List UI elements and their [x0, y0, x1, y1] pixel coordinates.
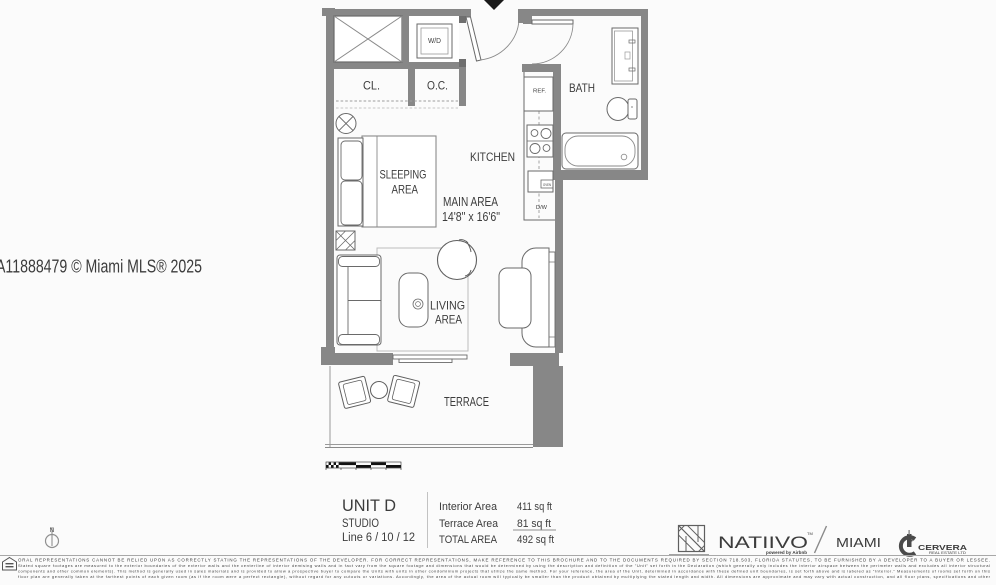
svg-text:TERRACE: TERRACE [444, 395, 489, 409]
svg-text:STUDIO: STUDIO [342, 518, 379, 530]
svg-text:SLEEPING: SLEEPING [380, 168, 427, 182]
svg-text:components and other common el: components and other common elements). T… [18, 569, 990, 574]
svg-text:KITCHEN: KITCHEN [470, 150, 515, 164]
svg-text:floor plan are generally taken: floor plan are generally taken at the fa… [18, 574, 991, 579]
svg-text:N: N [50, 527, 55, 534]
svg-text:CL.: CL. [363, 81, 380, 93]
svg-text:14'8" x 16'6": 14'8" x 16'6" [442, 209, 500, 224]
svg-text:OVEN: OVEN [543, 183, 551, 187]
svg-text:Line 6 / 10 / 12: Line 6 / 10 / 12 [342, 532, 415, 544]
svg-text:NATIIVO: NATIIVO [718, 533, 808, 552]
svg-text:UNIT D: UNIT D [342, 496, 396, 515]
svg-text:492 sq ft: 492 sq ft [517, 534, 554, 546]
svg-text:TOTAL AREA: TOTAL AREA [439, 534, 498, 546]
svg-text:REF.: REF. [533, 89, 547, 95]
svg-text:W/D: W/D [428, 38, 441, 45]
svg-text:Interior Area: Interior Area [439, 501, 498, 513]
svg-text:TM: TM [807, 531, 813, 536]
svg-text:D/W: D/W [536, 205, 548, 211]
svg-text:81 sq ft: 81 sq ft [517, 518, 551, 530]
svg-text:ORAL REPRESENTATIONS CANNOT BE: ORAL REPRESENTATIONS CANNOT BE RELIED UP… [18, 558, 990, 563]
svg-text:LIVING: LIVING [430, 299, 465, 313]
svg-text:Stated square footages are mea: Stated square footages are measured to t… [18, 563, 990, 568]
svg-text:O.C.: O.C. [427, 81, 448, 93]
svg-text:Terrace Area: Terrace Area [439, 518, 499, 530]
svg-text:REAL ESTATE LTD: REAL ESTATE LTD [929, 551, 967, 555]
svg-text:MIAMI: MIAMI [836, 535, 881, 550]
svg-text:BATH: BATH [569, 81, 595, 95]
svg-text:MAIN AREA: MAIN AREA [443, 194, 498, 209]
svg-text:AREA: AREA [392, 183, 419, 197]
svg-text:AREA: AREA [435, 313, 462, 327]
svg-text:A11888479 © Miami MLS® 2025: A11888479 © Miami MLS® 2025 [0, 256, 202, 277]
svg-text:411 sq ft: 411 sq ft [517, 501, 552, 513]
